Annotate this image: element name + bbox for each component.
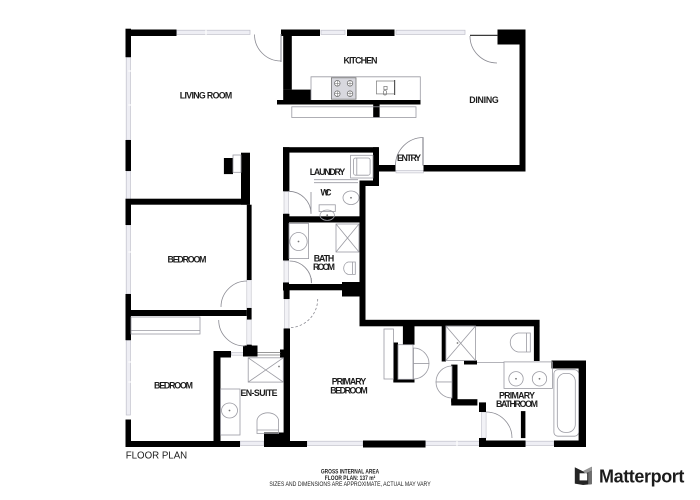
svg-text:EN-SUITE: EN-SUITE xyxy=(241,388,278,398)
svg-text:DINING: DINING xyxy=(469,95,499,105)
svg-text:GROSS INTERNAL AREA: GROSS INTERNAL AREA xyxy=(321,470,380,476)
svg-text:BATHROOM: BATHROOM xyxy=(496,399,538,409)
svg-text:ENTRY: ENTRY xyxy=(397,153,421,163)
svg-text:BEDROOM: BEDROOM xyxy=(168,255,207,265)
svg-text:FLOOR PLAN: FLOOR PLAN xyxy=(126,451,188,462)
svg-text:BEDROOM: BEDROOM xyxy=(154,381,193,391)
svg-text:KITCHEN: KITCHEN xyxy=(344,55,378,65)
svg-text:Matterport: Matterport xyxy=(599,467,684,487)
svg-text:ROOM: ROOM xyxy=(313,262,335,272)
svg-text:BEDROOM: BEDROOM xyxy=(330,386,368,396)
svg-text:LAUNDRY: LAUNDRY xyxy=(310,167,346,177)
svg-text:WC: WC xyxy=(321,187,333,197)
svg-text:FLOOR PLAN: 137 m²: FLOOR PLAN: 137 m² xyxy=(325,475,376,482)
svg-text:LIVING ROOM: LIVING ROOM xyxy=(180,91,233,101)
svg-text:SIZES AND DIMENSIONS ARE APPRO: SIZES AND DIMENSIONS ARE APPROXIMATE, AC… xyxy=(269,482,430,488)
